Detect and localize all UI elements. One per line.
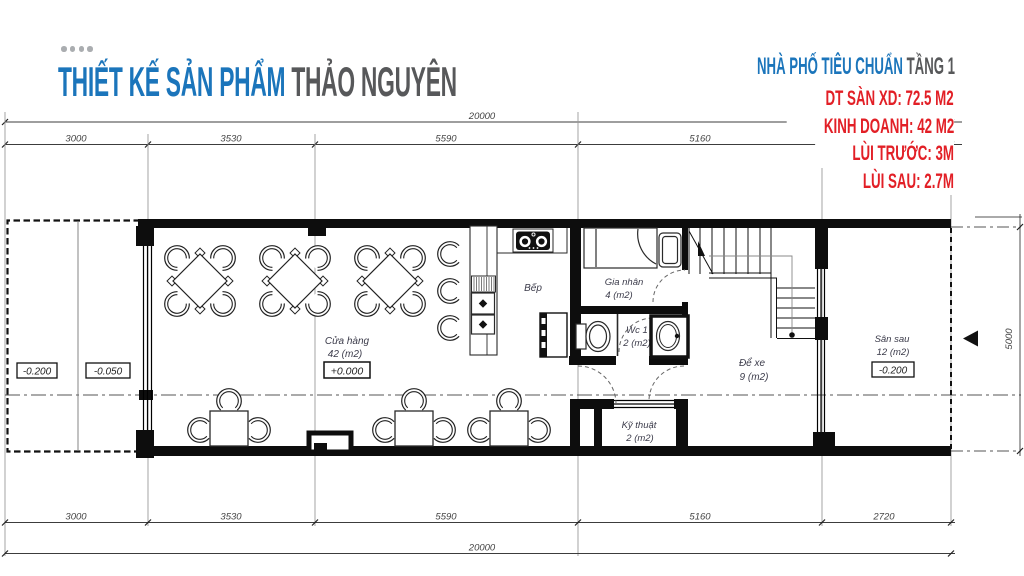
svg-text:2 (m2): 2 (m2) xyxy=(622,338,650,349)
svg-text:20000: 20000 xyxy=(468,543,496,554)
svg-text:3000: 3000 xyxy=(65,512,87,523)
svg-text:Cửa hàng: Cửa hàng xyxy=(325,335,370,347)
svg-text:Wc 1: Wc 1 xyxy=(626,325,648,336)
svg-text:2 (m2): 2 (m2) xyxy=(625,433,653,444)
svg-text:-0.050: -0.050 xyxy=(94,367,123,378)
svg-text:5000: 5000 xyxy=(1004,328,1015,350)
svg-text:-0.200: -0.200 xyxy=(879,366,908,377)
svg-text:5590: 5590 xyxy=(435,512,457,523)
svg-text:+0.000: +0.000 xyxy=(331,366,364,378)
svg-text:Gia nhân: Gia nhân xyxy=(605,277,644,288)
svg-text:20000: 20000 xyxy=(468,111,496,122)
svg-text:4 (m2): 4 (m2) xyxy=(605,290,632,301)
svg-text:Kỹ thuật: Kỹ thuật xyxy=(622,420,657,431)
svg-text:5160: 5160 xyxy=(689,512,711,523)
svg-text:42 (m2): 42 (m2) xyxy=(328,349,362,360)
svg-text:12 (m2): 12 (m2) xyxy=(877,347,910,358)
svg-text:3530: 3530 xyxy=(220,512,242,523)
svg-text:5590: 5590 xyxy=(435,134,457,145)
svg-text:Bếp: Bếp xyxy=(524,282,542,294)
svg-text:3530: 3530 xyxy=(220,134,242,145)
svg-text:-0.200: -0.200 xyxy=(23,367,52,378)
svg-text:Sân sau: Sân sau xyxy=(875,334,911,345)
svg-text:2720: 2720 xyxy=(872,512,895,523)
svg-text:3000: 3000 xyxy=(65,134,87,145)
svg-text:Để xe: Để xe xyxy=(739,357,766,369)
svg-text:9 (m2): 9 (m2) xyxy=(740,372,769,383)
